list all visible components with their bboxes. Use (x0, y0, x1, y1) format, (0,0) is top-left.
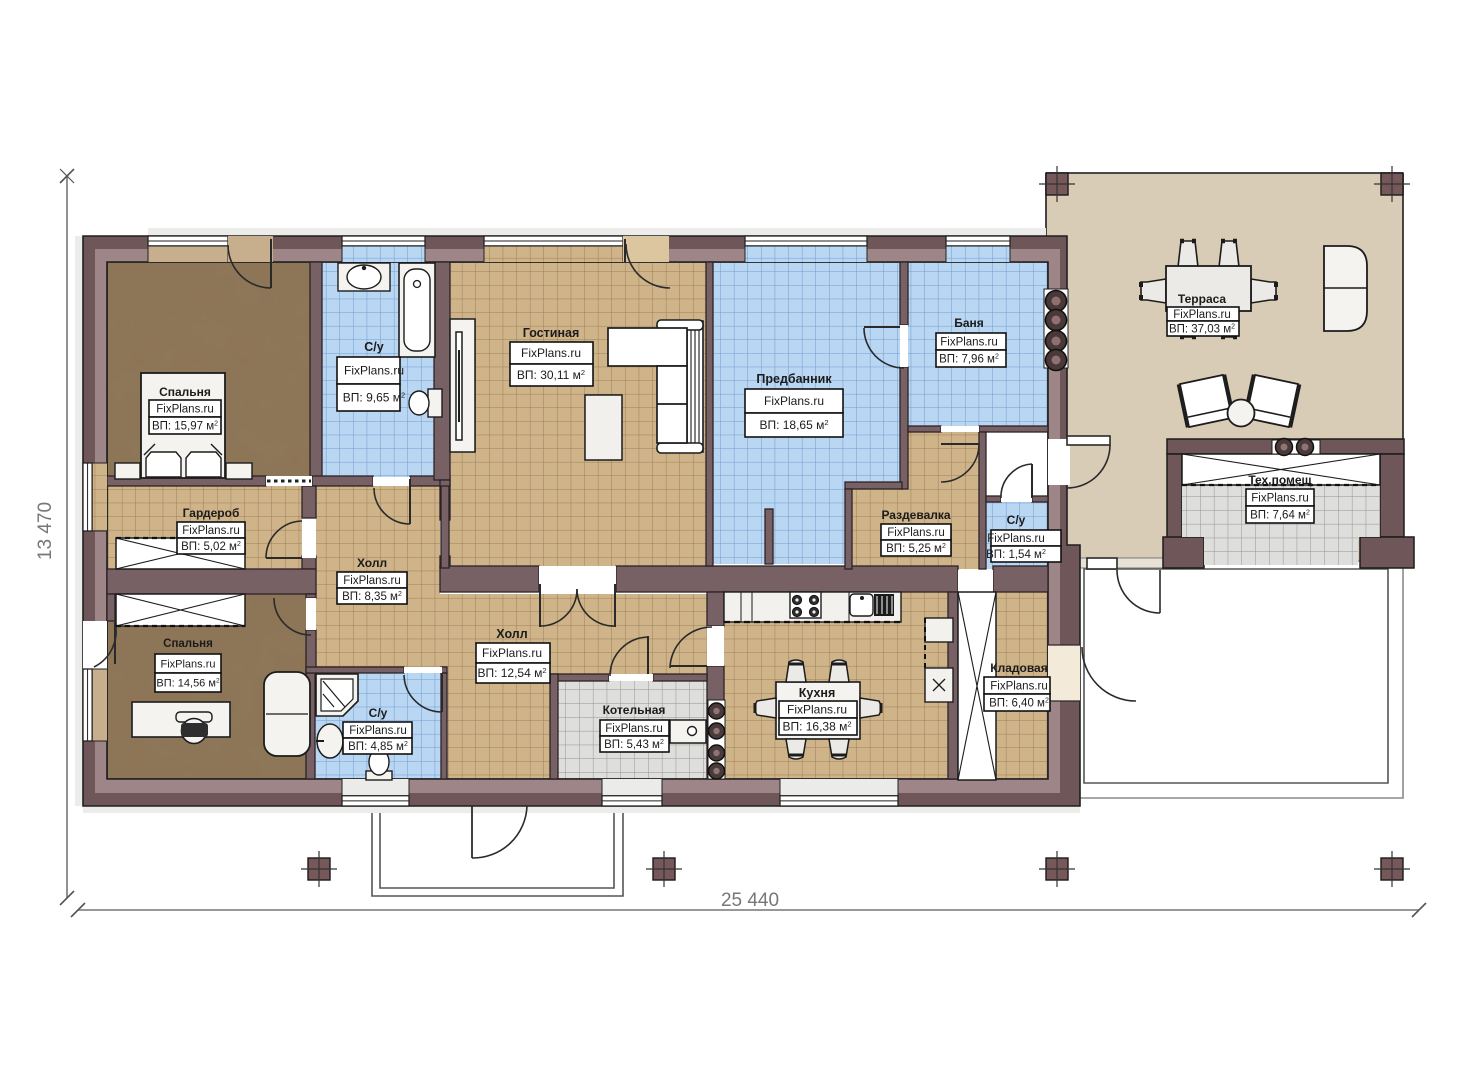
svg-text:Баня: Баня (954, 316, 984, 330)
svg-text:ВП: 30,11 м2: ВП: 30,11 м2 (517, 368, 585, 382)
svg-text:FixPlans.ru: FixPlans.ru (349, 725, 407, 737)
svg-text:FixPlans.ru: FixPlans.ru (482, 646, 542, 660)
svg-text:Котельная: Котельная (603, 703, 666, 717)
svg-text:FixPlans.ru: FixPlans.ru (521, 346, 581, 360)
svg-text:25 440: 25 440 (721, 890, 779, 911)
svg-text:Кладовая: Кладовая (990, 661, 1047, 675)
svg-text:ВП: 1,54 м2: ВП: 1,54 м2 (986, 549, 1046, 561)
svg-text:13 470: 13 470 (35, 502, 56, 560)
svg-text:FixPlans.ru: FixPlans.ru (1173, 309, 1231, 321)
svg-text:ВП: 7,64 м2: ВП: 7,64 м2 (1250, 510, 1310, 522)
svg-text:FixPlans.ru: FixPlans.ru (990, 681, 1048, 693)
svg-text:ВП: 16,38 м2: ВП: 16,38 м2 (782, 720, 851, 734)
svg-text:FixPlans.ru: FixPlans.ru (1251, 493, 1309, 505)
svg-text:С/у: С/у (1007, 513, 1026, 527)
svg-text:С/у: С/у (364, 340, 384, 354)
svg-text:Гардероб: Гардероб (183, 506, 240, 520)
svg-text:ВП: 5,02 м2: ВП: 5,02 м2 (181, 541, 241, 553)
svg-text:ВП: 37,03 м2: ВП: 37,03 м2 (1169, 324, 1235, 336)
svg-text:FixPlans.ru: FixPlans.ru (343, 575, 401, 587)
svg-text:FixPlans.ru: FixPlans.ru (160, 659, 215, 671)
svg-text:ВП: 15,97 м2: ВП: 15,97 м2 (152, 421, 218, 433)
svg-text:ВП: 18,65 м2: ВП: 18,65 м2 (759, 418, 828, 432)
svg-text:С/у: С/у (369, 706, 388, 720)
svg-text:Холл: Холл (496, 627, 527, 641)
svg-text:Спальня: Спальня (159, 385, 211, 399)
svg-text:Кухня: Кухня (799, 686, 836, 700)
svg-text:FixPlans.ru: FixPlans.ru (887, 527, 945, 539)
svg-text:ВП: 5,43 м2: ВП: 5,43 м2 (604, 739, 664, 751)
svg-text:FixPlans.ru: FixPlans.ru (156, 404, 214, 416)
svg-text:FixPlans.ru: FixPlans.ru (787, 703, 847, 717)
svg-text:FixPlans.ru: FixPlans.ru (764, 394, 824, 408)
svg-text:Гостиная: Гостиная (523, 326, 580, 340)
svg-text:ВП: 4,85 м2: ВП: 4,85 м2 (348, 741, 408, 753)
svg-text:FixPlans.ru: FixPlans.ru (940, 337, 998, 349)
svg-text:Спальня: Спальня (163, 638, 213, 650)
svg-text:FixPlans.ru: FixPlans.ru (182, 525, 240, 537)
svg-text:ВП: 9,65 м2: ВП: 9,65 м2 (343, 391, 405, 405)
svg-text:FixPlans.ru: FixPlans.ru (344, 364, 404, 378)
svg-text:ВП: 8,35 м2: ВП: 8,35 м2 (342, 591, 402, 603)
svg-text:Холл: Холл (357, 556, 387, 570)
svg-text:FixPlans.ru: FixPlans.ru (987, 533, 1045, 545)
svg-text:Раздевалка: Раздевалка (881, 508, 950, 522)
svg-text:Предбанник: Предбанник (756, 372, 832, 386)
svg-text:ВП: 5,25 м2: ВП: 5,25 м2 (886, 543, 946, 555)
svg-text:Тех.помещ: Тех.помещ (1248, 473, 1312, 487)
svg-text:Терраса: Терраса (1178, 292, 1227, 306)
svg-text:ВП: 12,54 м2: ВП: 12,54 м2 (477, 666, 546, 680)
svg-text:ВП: 14,56 м2: ВП: 14,56 м2 (156, 678, 220, 690)
svg-text:ВП: 7,96 м2: ВП: 7,96 м2 (939, 354, 999, 366)
svg-text:ВП: 6,40 м2: ВП: 6,40 м2 (989, 698, 1049, 710)
svg-text:FixPlans.ru: FixPlans.ru (605, 723, 663, 735)
